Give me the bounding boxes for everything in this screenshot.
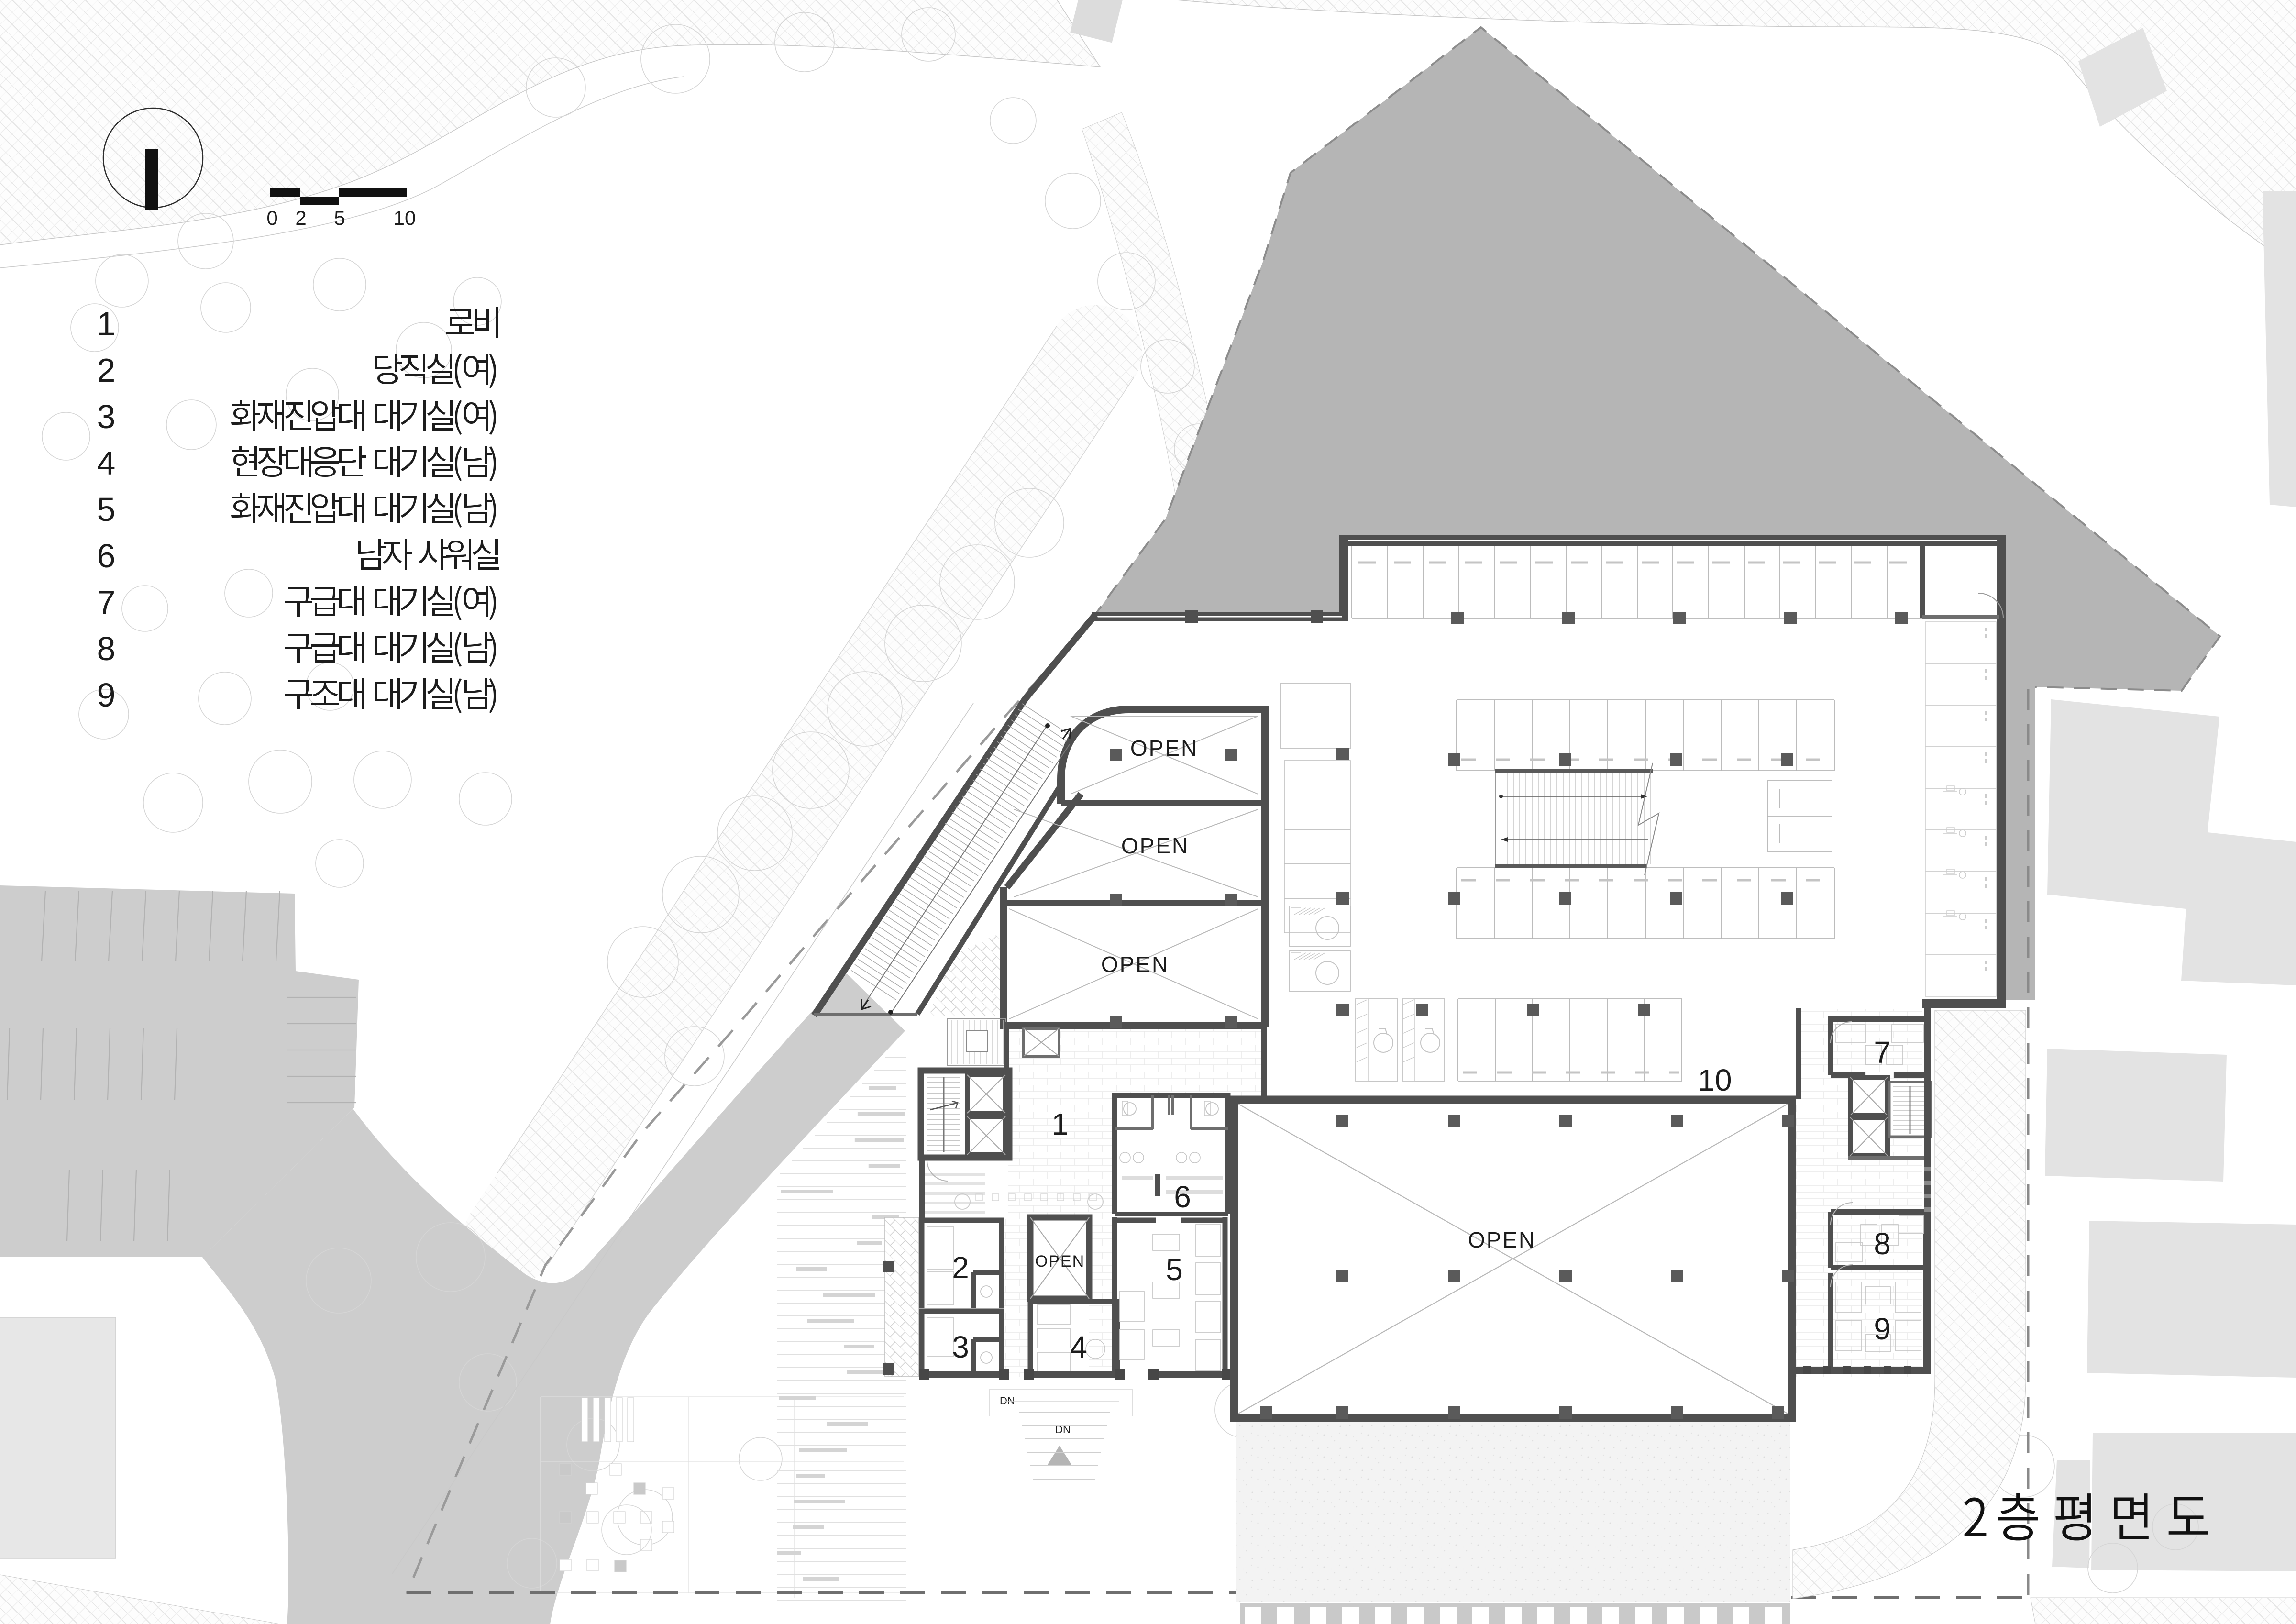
svg-text:4: 4 [97,444,116,482]
svg-text:8: 8 [97,630,116,667]
svg-text:9: 9 [1874,1312,1891,1346]
svg-text:2: 2 [952,1250,969,1285]
svg-text:1: 1 [1051,1107,1069,1141]
svg-text:5: 5 [334,207,345,229]
svg-text:6: 6 [97,537,116,574]
svg-text:3: 3 [952,1330,969,1364]
svg-text:8: 8 [1874,1226,1891,1261]
svg-text:OPEN: OPEN [1468,1227,1536,1252]
svg-text:10: 10 [1698,1063,1732,1097]
svg-text:7: 7 [1874,1035,1891,1070]
svg-text:0: 0 [266,207,277,229]
svg-text:5: 5 [97,491,116,528]
svg-text:2: 2 [295,207,306,229]
svg-text:OPEN: OPEN [1130,736,1198,761]
svg-text:10: 10 [394,207,416,229]
svg-text:OPEN: OPEN [1101,952,1169,977]
svg-text:9: 9 [97,676,116,714]
svg-text:DN: DN [1000,1395,1015,1407]
svg-text:3: 3 [97,398,116,435]
svg-text:2: 2 [97,352,116,389]
svg-text:OPEN: OPEN [1035,1252,1085,1270]
svg-text:OPEN: OPEN [1121,833,1189,858]
svg-text:1: 1 [97,305,116,342]
svg-text:4: 4 [1070,1330,1087,1364]
svg-text:6: 6 [1174,1180,1191,1214]
svg-text:7: 7 [97,584,116,621]
svg-text:5: 5 [1166,1252,1183,1287]
